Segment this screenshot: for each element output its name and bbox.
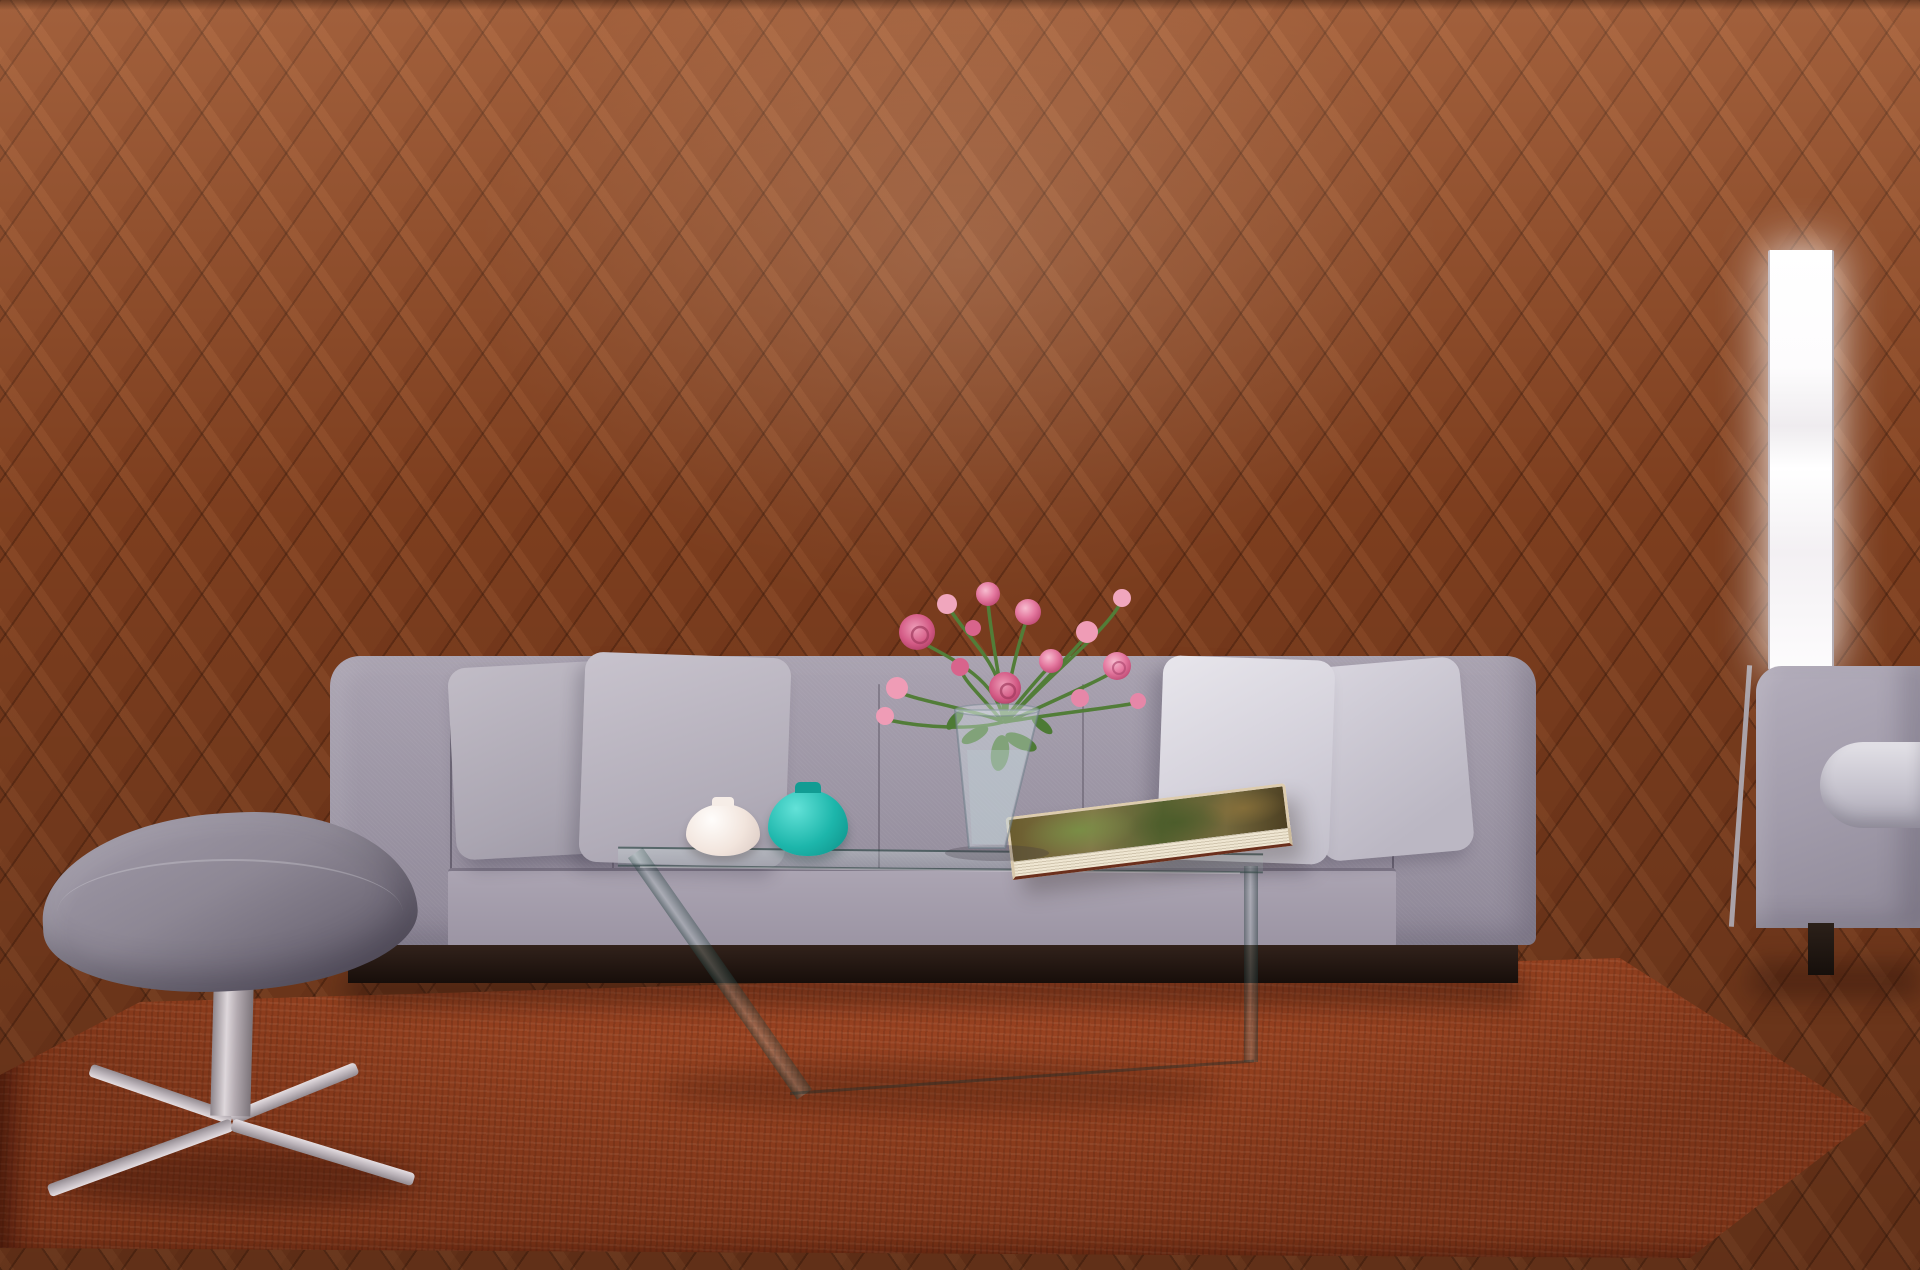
white-vase [686,804,760,856]
living-room-scene: 150 x 100 cm 90 x 60 cm 20 x 30 cm DIN A… [0,0,1920,1270]
flower-bouquet [855,568,1185,868]
glass-table-leg [628,848,812,1100]
teal-vase [768,790,848,856]
glass-table-bottom-edge [790,1060,1254,1095]
glass-table-side-panel [1244,866,1258,1062]
